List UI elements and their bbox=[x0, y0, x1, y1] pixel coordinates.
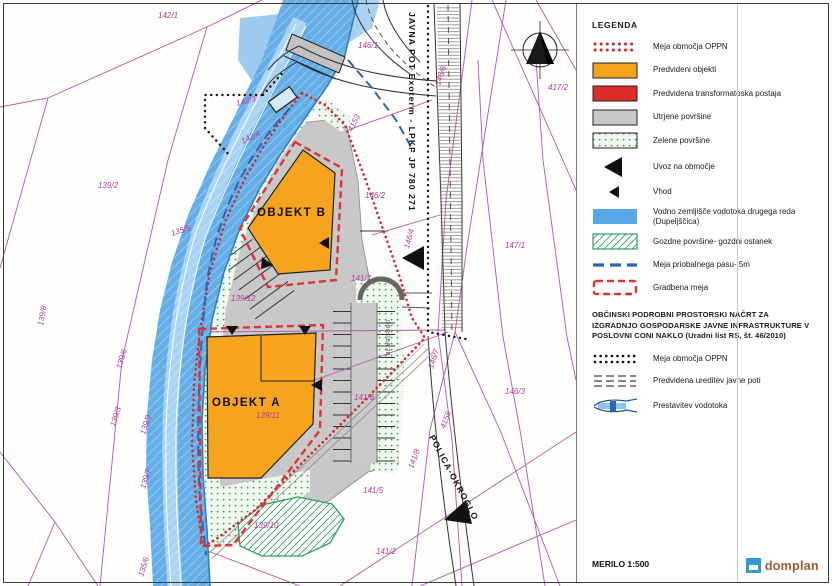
legend-item-3: Utrjene površine bbox=[592, 109, 828, 126]
small-label: OBROBA 2B bbox=[384, 320, 390, 356]
legend-item-label-1: Predvideni objekti bbox=[644, 65, 716, 75]
legend-item-label-4: Zelene površine bbox=[644, 136, 710, 146]
legend-item-2: Predvidena transformatoska postaja bbox=[592, 85, 828, 102]
legend-items: Meja območja OPPNPredvideni objektiPredv… bbox=[592, 39, 828, 297]
legend-item-label-3: Utrjene površine bbox=[644, 112, 711, 122]
legend-item-label-9: Meja priobalnega pasu- 5m bbox=[644, 260, 750, 270]
domplan-logo-icon bbox=[746, 558, 761, 573]
legend-note-item-1: Predvidena ureditev javne poti bbox=[592, 373, 828, 389]
object-label: OBJEKT A bbox=[212, 397, 281, 409]
legend-note-item-label-2: Prestavitev vodotoka bbox=[644, 401, 727, 411]
legend-item-7: Vodno zemljišče vodotoka drugega reda(Du… bbox=[592, 207, 828, 227]
blue-rect-swatch bbox=[592, 208, 644, 225]
blue-dashed-line-swatch bbox=[592, 261, 644, 269]
oppn-red-dots-swatch bbox=[592, 40, 644, 54]
parcel-label: 142/1 bbox=[158, 11, 178, 20]
legend-item-label-10: Gradbena meja bbox=[644, 283, 708, 293]
legend-item-0: Meja območja OPPN bbox=[592, 39, 828, 55]
legend-note: OBČINSKI PODROBNI PROSTORSKI NAČRT ZA IZ… bbox=[592, 310, 816, 342]
parcel-label: 139/10 bbox=[254, 521, 279, 530]
legend-item-label-0: Meja območja OPPN bbox=[644, 42, 728, 52]
parcel-label: 417/2 bbox=[548, 83, 569, 92]
orange-rect-swatch bbox=[592, 62, 644, 79]
legend-item-8: Gozdne površine- gozdni ostanek bbox=[592, 233, 828, 250]
legend-item-10: Gradbena meja bbox=[592, 279, 828, 297]
parcel-label: 139/12 bbox=[231, 294, 256, 303]
red-dashed-outline-swatch bbox=[592, 279, 644, 297]
parcel-label: 141/6 bbox=[354, 393, 375, 402]
legend-note-item-label-1: Predvidena ureditev javne poti bbox=[644, 376, 761, 386]
plan-map: OBJEKT BOBJEKT AJAVNA POT Exoterm - LPKF… bbox=[0, 0, 576, 586]
legend-item-label-8: Gozdne površine- gozdni ostanek bbox=[644, 237, 772, 247]
legend-item-4: Zelene površine bbox=[592, 132, 828, 149]
parcel-label: 141/2 bbox=[376, 547, 397, 556]
domplan-logo-text: domplan bbox=[765, 559, 819, 573]
parcel-label: 146/3 bbox=[505, 387, 526, 396]
oppn-black-dots-swatch bbox=[592, 352, 644, 366]
parcel-label: 146/1 bbox=[358, 41, 378, 50]
uvoz-triangle-swatch bbox=[592, 156, 644, 178]
parcel-label: 147/1 bbox=[505, 241, 525, 250]
vhod-triangle-swatch bbox=[592, 184, 644, 200]
red-rect-swatch bbox=[592, 85, 644, 102]
legend-item-label-6: Vhod bbox=[644, 187, 672, 197]
path-dashes-swatch bbox=[592, 373, 644, 389]
legend-note-item-label-0: Meja območja OPPN bbox=[644, 354, 728, 364]
plan-sheet: OBJEKT BOBJEKT AJAVNA POT Exoterm - LPKF… bbox=[0, 0, 832, 586]
object-label: OBJEKT B bbox=[257, 207, 326, 219]
gray-rect-swatch bbox=[592, 109, 644, 126]
parcel-label: 141/7 bbox=[351, 274, 372, 283]
street-label: JAVNA POT Exoterm - LPKF JP 780 271 bbox=[407, 12, 417, 212]
legend-title: LEGENDA bbox=[592, 20, 828, 30]
legend-note-items: Meja območja OPPNPredvidena ureditev jav… bbox=[592, 351, 828, 416]
legend-item-1: Predvideni objekti bbox=[592, 62, 828, 79]
legend-note-item-0: Meja območja OPPN bbox=[592, 351, 828, 367]
legend-item-label-2: Predvidena transformatoska postaja bbox=[644, 89, 781, 99]
legend-item-6: Vhod bbox=[592, 184, 828, 200]
scale-label: MERILO 1:500 bbox=[592, 559, 649, 569]
legend-panel: LEGENDA Meja območja OPPNPredvideni obje… bbox=[576, 4, 828, 582]
legend-note-item-2: Prestavitev vodotoka bbox=[592, 396, 828, 416]
parcel-label: 139/11 bbox=[256, 411, 280, 420]
parcel-label: 141/5 bbox=[363, 486, 384, 495]
legend-item-9: Meja priobalnega pasu- 5m bbox=[592, 257, 828, 273]
parcel-label: 139/2 bbox=[98, 181, 119, 190]
legend-item-label-5: Uvoz na območje bbox=[644, 162, 715, 172]
legend-divider bbox=[737, 4, 738, 582]
forest-hatch-rect-swatch bbox=[592, 233, 644, 250]
legend-item-label-7: Vodno zemljišče vodotoka drugega reda(Du… bbox=[644, 207, 795, 227]
parcel-label: 146/2 bbox=[365, 191, 386, 200]
company-logo: domplan bbox=[746, 558, 819, 573]
legend-item-5: Uvoz na območje bbox=[592, 156, 828, 178]
watercourse-swatch bbox=[592, 396, 644, 416]
green-dots-rect-swatch bbox=[592, 132, 644, 149]
